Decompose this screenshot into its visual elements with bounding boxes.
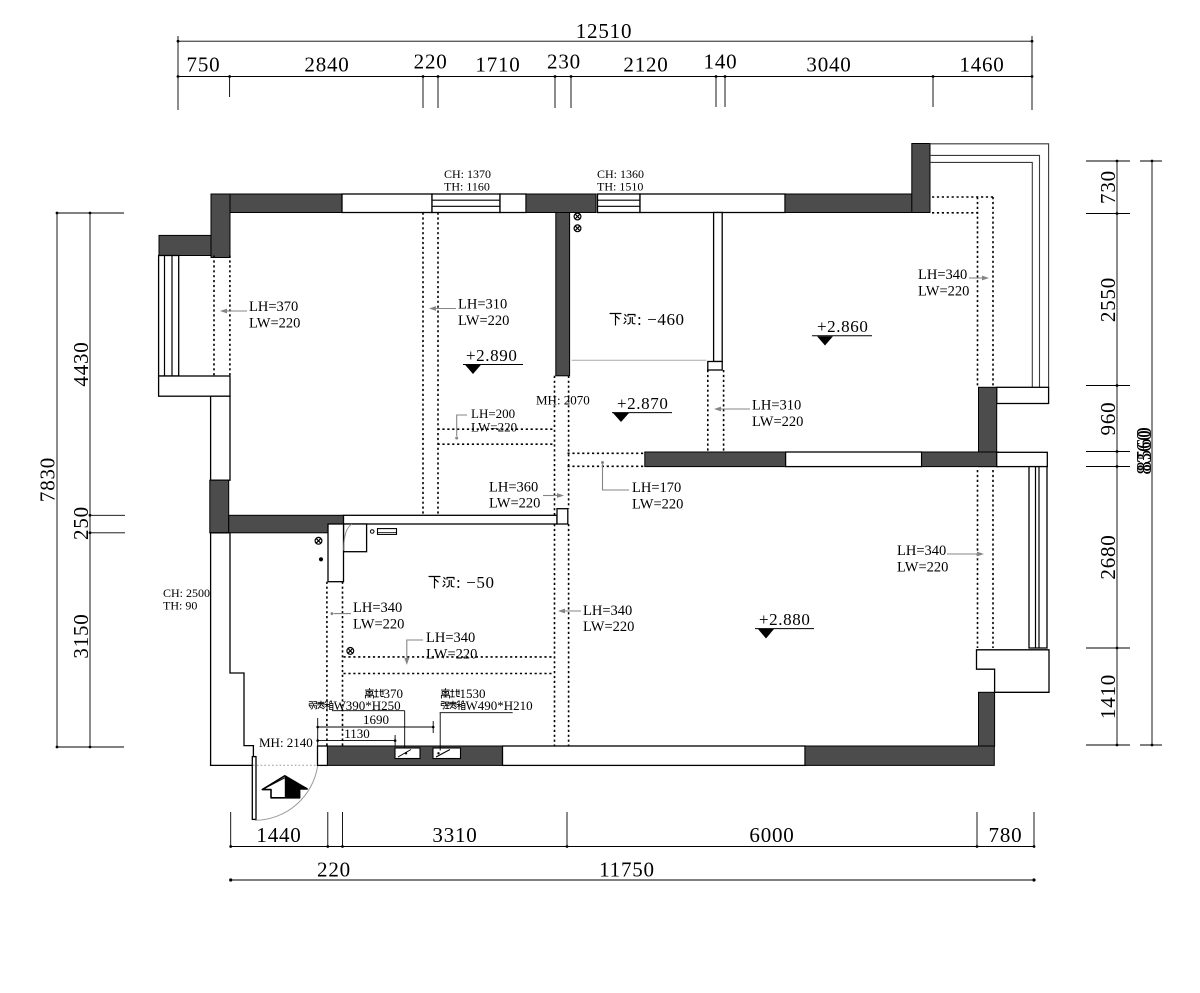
svg-text:LW=220: LW=220 (583, 619, 634, 635)
svg-text:750: 750 (187, 53, 221, 77)
svg-text:LH=310: LH=310 (752, 398, 801, 414)
svg-text:3310: 3310 (432, 823, 477, 847)
svg-text:LW=220: LW=220 (897, 560, 948, 576)
svg-text:W490*H210: W490*H210 (466, 698, 533, 713)
svg-text:LH=370: LH=370 (249, 299, 298, 315)
svg-text:LH=340: LH=340 (426, 630, 475, 646)
svg-text:220: 220 (414, 50, 448, 74)
svg-text:LW=220: LW=220 (353, 617, 404, 633)
svg-text:1690: 1690 (363, 712, 389, 727)
svg-text:LH=170: LH=170 (632, 480, 681, 496)
svg-text:3150: 3150 (69, 613, 93, 658)
svg-text:LH=310: LH=310 (458, 297, 507, 313)
svg-text:LW=220: LW=220 (426, 647, 477, 663)
svg-text:LH=340: LH=340 (353, 600, 402, 616)
svg-text:2840: 2840 (304, 53, 349, 77)
svg-text:LH=360: LH=360 (489, 480, 538, 496)
svg-text:LH=340: LH=340 (583, 603, 632, 619)
svg-text:140: 140 (704, 50, 738, 74)
svg-text:: −460: : −460 (637, 310, 685, 329)
svg-text:+2.880: +2.880 (759, 610, 810, 629)
svg-text:LW=220: LW=220 (249, 316, 300, 332)
svg-text:LW=220: LW=220 (458, 313, 509, 329)
svg-text:MH: 2070: MH: 2070 (536, 393, 590, 408)
svg-text:780: 780 (989, 823, 1023, 847)
svg-text:730: 730 (1096, 170, 1120, 204)
svg-text:1440: 1440 (256, 823, 301, 847)
svg-text:2120: 2120 (623, 53, 668, 77)
svg-text:LW=220: LW=220 (918, 284, 969, 300)
svg-text:TH: 90: TH: 90 (163, 599, 197, 613)
svg-text:960: 960 (1096, 402, 1120, 436)
svg-text:LH=340: LH=340 (897, 543, 946, 559)
svg-text:TH: 1510: TH: 1510 (597, 180, 643, 194)
svg-text:1460: 1460 (959, 53, 1004, 77)
svg-text:: −50: : −50 (456, 573, 495, 592)
svg-text:12510: 12510 (576, 19, 633, 43)
svg-text:2550: 2550 (1096, 277, 1120, 322)
svg-text:MH: 2140: MH: 2140 (259, 735, 313, 750)
svg-text:TH: 1160: TH: 1160 (444, 180, 490, 194)
svg-text:+2.890: +2.890 (466, 346, 517, 365)
svg-text:LW=220: LW=220 (632, 497, 683, 513)
svg-text:220: 220 (317, 858, 351, 882)
svg-text:250: 250 (69, 506, 93, 540)
svg-text:4430: 4430 (69, 341, 93, 386)
svg-text:2680: 2680 (1096, 534, 1120, 579)
svg-text:1130: 1130 (344, 726, 370, 741)
svg-text:1410: 1410 (1096, 674, 1120, 719)
svg-text:LH=340: LH=340 (918, 267, 967, 283)
svg-text:LW=220: LW=220 (489, 496, 540, 512)
svg-text:230: 230 (547, 50, 581, 74)
svg-text:+2.870: +2.870 (617, 394, 668, 413)
svg-text:6000: 6000 (749, 823, 794, 847)
svg-text:3040: 3040 (806, 53, 851, 77)
svg-text:7830: 7830 (36, 457, 60, 502)
svg-text:8560: 8560 (1132, 426, 1156, 471)
svg-text:LW=220: LW=220 (471, 420, 517, 435)
svg-text:LW=220: LW=220 (752, 414, 803, 430)
svg-text:1710: 1710 (475, 53, 520, 77)
svg-text:+2.860: +2.860 (817, 317, 868, 336)
svg-text:11750: 11750 (599, 858, 655, 882)
